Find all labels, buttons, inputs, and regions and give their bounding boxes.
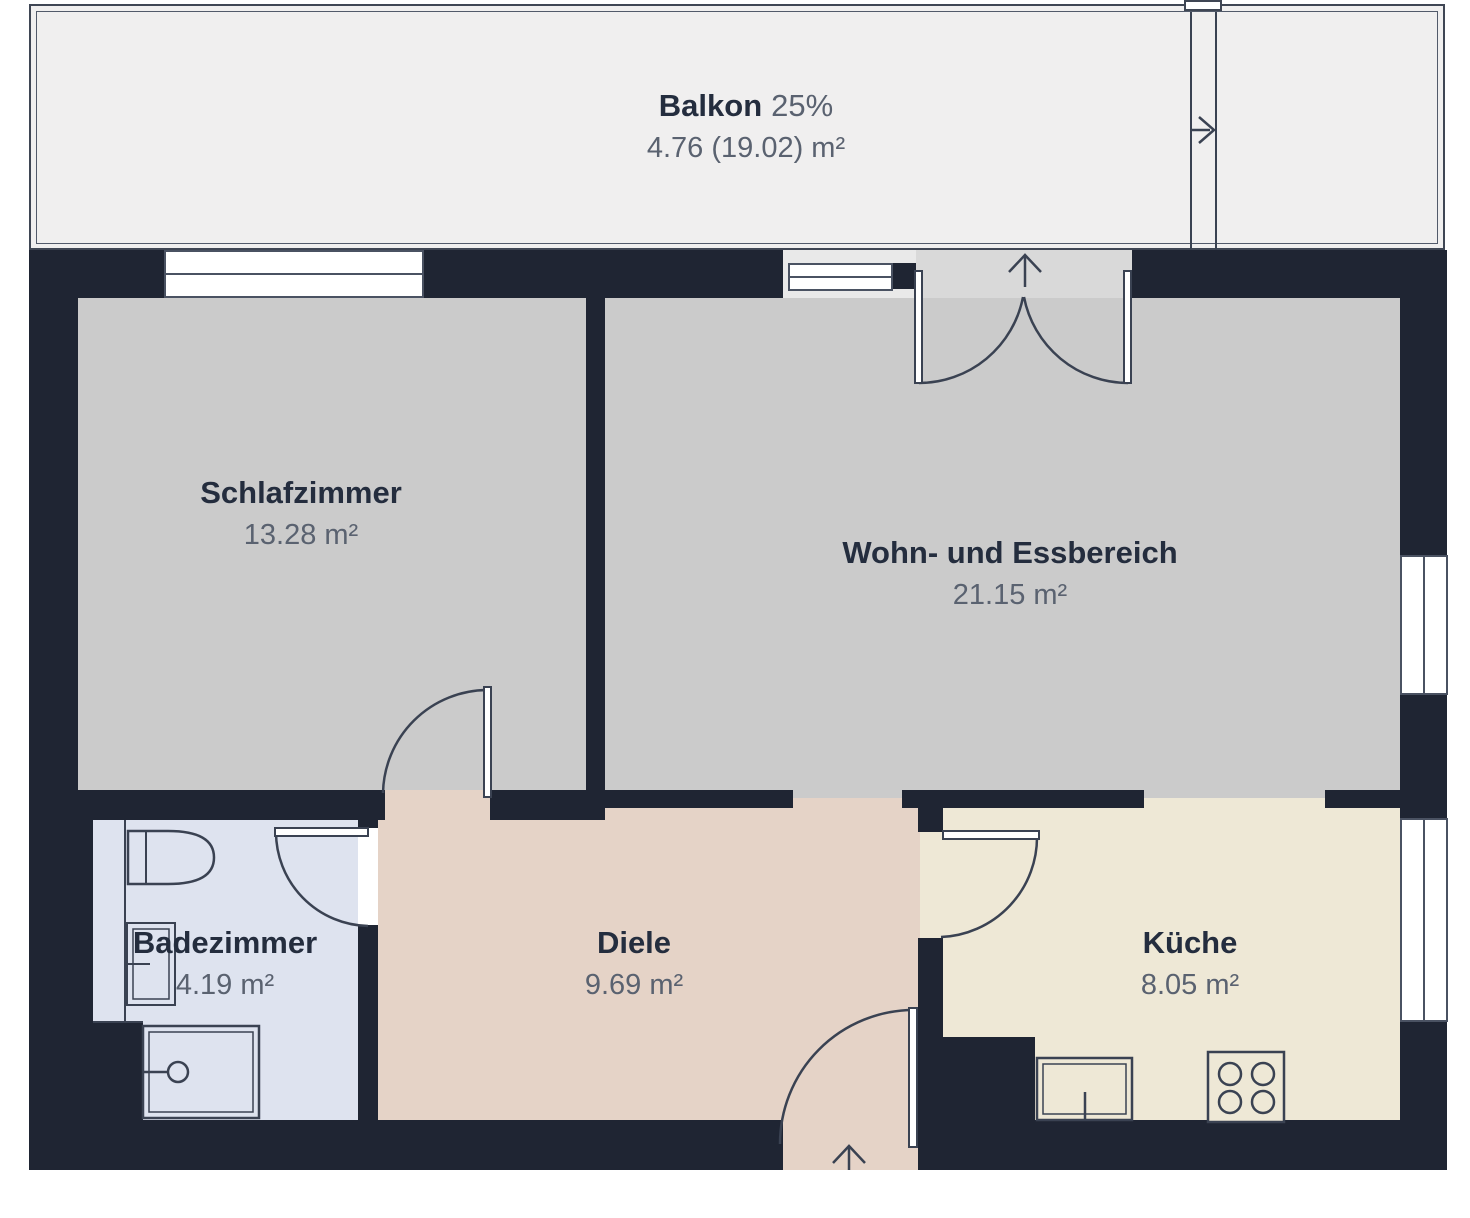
room-label-diele: Diele 9.69 m²	[585, 922, 683, 1006]
entrance-arrow-icon	[833, 1146, 865, 1170]
toilet-icon	[128, 831, 214, 884]
room-name: Badezimmer	[133, 922, 317, 964]
room-area: 4.19 m²	[133, 964, 317, 1006]
bathroom-door	[275, 828, 368, 926]
kitchen-sink-icon	[1037, 1058, 1132, 1120]
room-name: Wohn- und Essbereich	[842, 532, 1177, 574]
window-divider-lines	[166, 274, 1424, 1020]
shower-icon	[143, 1026, 259, 1118]
balcony-french-door	[915, 271, 1131, 383]
room-name: Diele	[585, 922, 683, 964]
room-label-wohn-essbereich: Wohn- und Essbereich 21.15 m²	[842, 532, 1177, 616]
room-label-schlafzimmer: Schlafzimmer 13.28 m²	[200, 472, 402, 556]
bedroom-door	[383, 687, 491, 797]
apartment-entrance-door	[780, 1008, 917, 1147]
room-area: 13.28 m²	[200, 514, 402, 556]
room-area: 8.05 m²	[1141, 964, 1239, 1006]
stove-icon	[1208, 1052, 1284, 1122]
room-area: 21.15 m²	[842, 574, 1177, 616]
room-name: Schlafzimmer	[200, 472, 402, 514]
room-label-badezimmer: Badezimmer 4.19 m²	[133, 922, 317, 1006]
balcony-share: 25%	[771, 88, 833, 123]
room-label-kueche: Küche 8.05 m²	[1141, 922, 1239, 1006]
room-area: 4.76 (19.02) m²	[647, 127, 845, 169]
room-name: Balkon25%	[647, 85, 845, 127]
balcony-door-swing-arrow-icon	[1009, 255, 1041, 287]
room-area: 9.69 m²	[585, 964, 683, 1006]
kitchen-door	[941, 831, 1039, 937]
room-name: Küche	[1141, 922, 1239, 964]
balcony-divider-arrow-icon	[1192, 117, 1214, 143]
plan-linework	[0, 0, 1470, 1218]
floor-plan: Balkon25% 4.76 (19.02) m² Schlafzimmer 1…	[0, 0, 1470, 1218]
room-label-balkon: Balkon25% 4.76 (19.02) m²	[647, 85, 845, 169]
